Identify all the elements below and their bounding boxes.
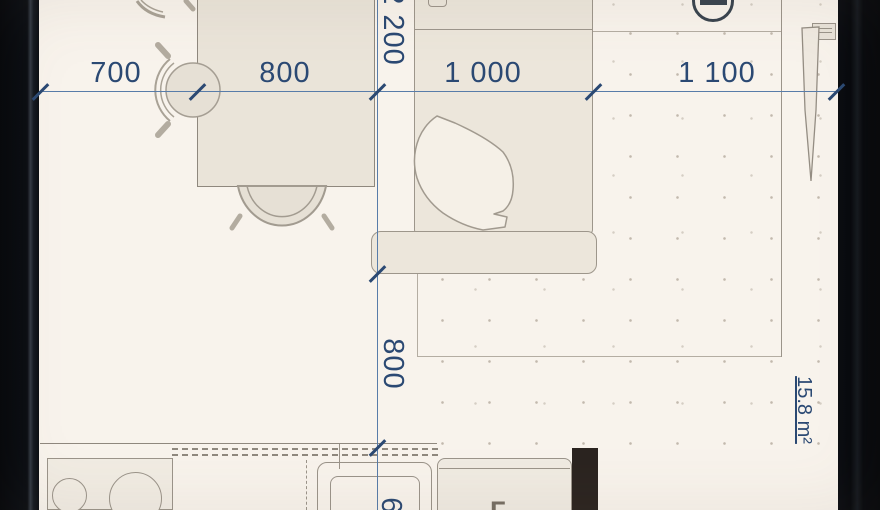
appliance-label: Г [490, 496, 530, 510]
letterbox-right [838, 0, 880, 510]
chair-bottom [224, 183, 342, 247]
sofa-cushion-line [415, 29, 592, 30]
dim-700: 700 [56, 58, 176, 88]
dim-1100: 1 100 [657, 58, 777, 88]
dim-2200-vertical: 2 200 [378, 0, 408, 82]
dim-800: 800 [225, 58, 345, 88]
counter-dashed-divider [306, 460, 307, 510]
right-wall-line [781, 0, 782, 357]
dim-1000: 1 000 [423, 58, 543, 88]
dining-table [197, 0, 375, 187]
door-leaf [798, 22, 824, 186]
throw-blanket [405, 108, 525, 238]
wall-segment [572, 448, 598, 510]
floor-plan-canvas: Г 700 800 1 000 1 100 2 200 800 600 15.8… [0, 0, 880, 510]
upper-cabinet-dashed-line [172, 454, 438, 456]
chair-top [134, 0, 204, 22]
room-area-label: 15.8 m² [792, 362, 816, 458]
dim-800-vertical: 800 [378, 329, 408, 399]
dim-600-vertical: 600 [376, 488, 406, 510]
upper-cabinet-dashed-line [172, 448, 438, 450]
horizontal-dimension-line [39, 91, 837, 92]
burner-small [52, 478, 87, 510]
level-marker-bar [700, 0, 727, 5]
refrigerator-top-line [439, 468, 570, 469]
letterbox-left [0, 0, 39, 510]
sofa-pillow [428, 0, 447, 7]
